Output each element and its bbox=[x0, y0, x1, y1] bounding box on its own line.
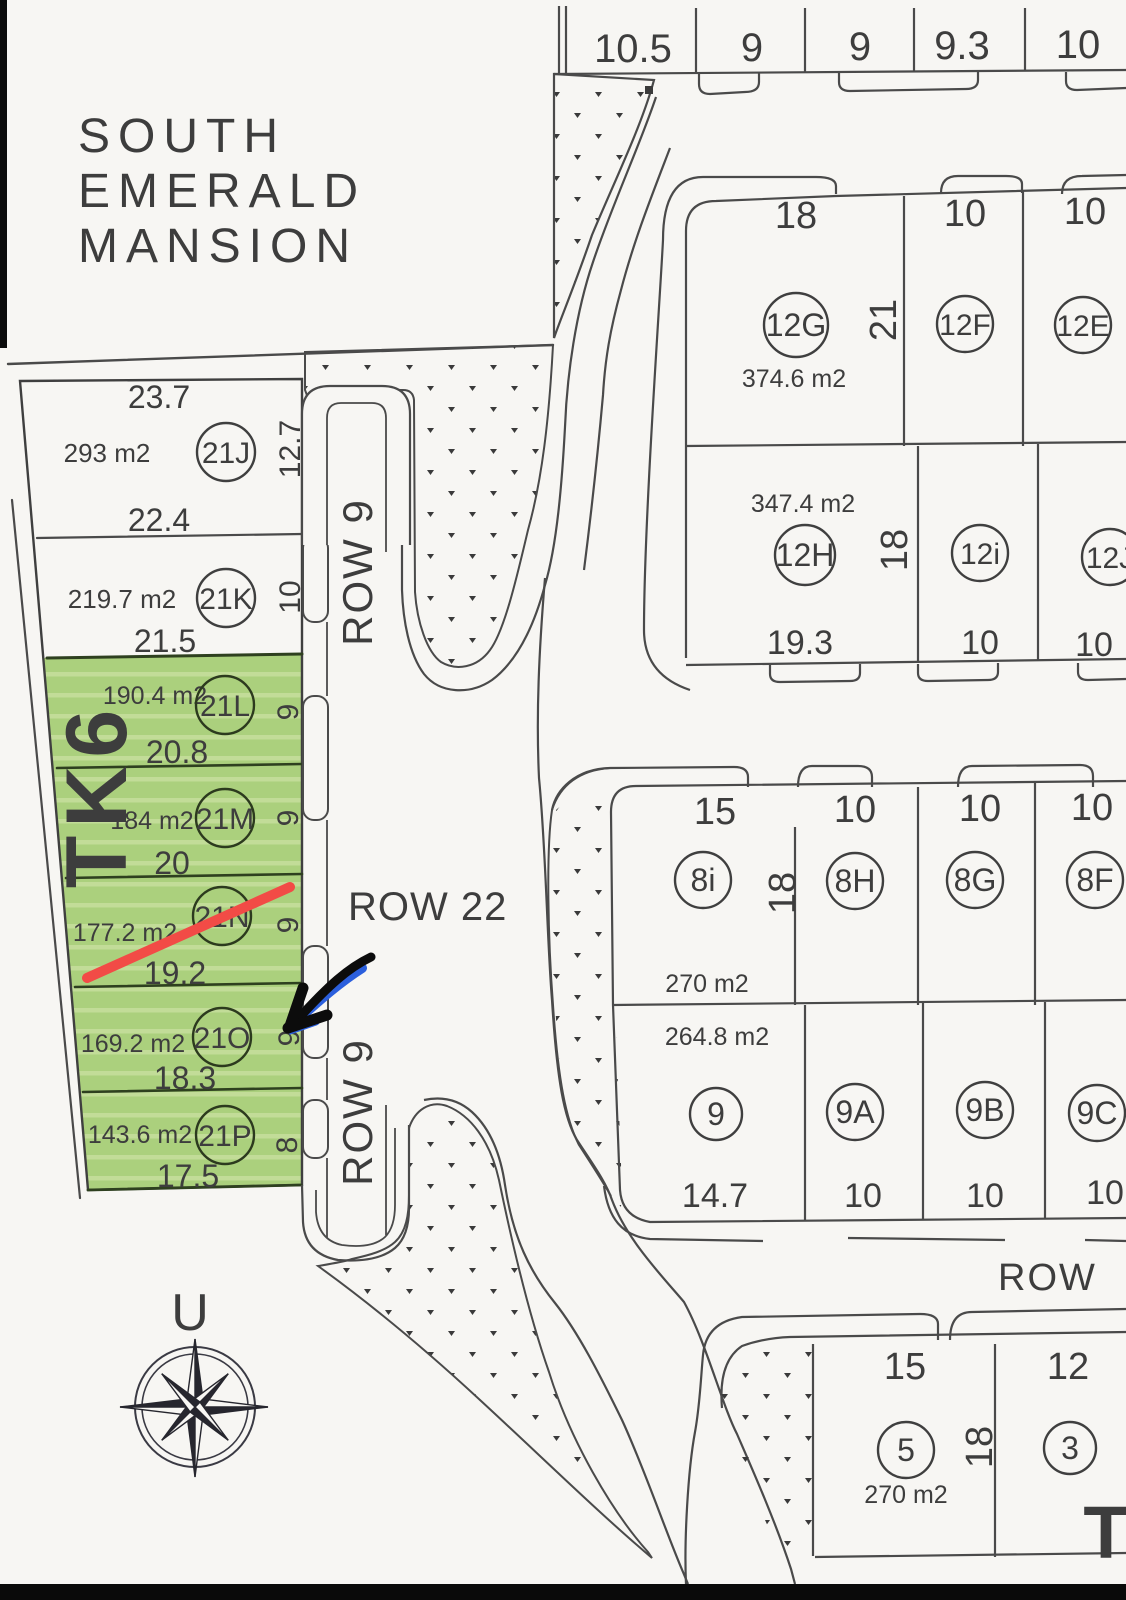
svg-text:169.2 m2: 169.2 m2 bbox=[81, 1030, 185, 1058]
svg-text:15: 15 bbox=[884, 1346, 926, 1388]
svg-text:219.7 m2: 219.7 m2 bbox=[68, 584, 176, 614]
svg-text:10: 10 bbox=[944, 193, 986, 235]
svg-text:17.5: 17.5 bbox=[157, 1158, 219, 1194]
svg-text:21J: 21J bbox=[202, 437, 250, 470]
svg-text:3: 3 bbox=[1061, 1430, 1079, 1466]
svg-text:10: 10 bbox=[959, 788, 1001, 830]
svg-text:10: 10 bbox=[1064, 191, 1106, 233]
svg-text:9B: 9B bbox=[965, 1092, 1004, 1128]
svg-text:12F: 12F bbox=[939, 309, 991, 342]
svg-text:21.5: 21.5 bbox=[134, 623, 196, 659]
svg-text:14.7: 14.7 bbox=[682, 1177, 748, 1215]
svg-text:8G: 8G bbox=[954, 862, 997, 898]
svg-text:10: 10 bbox=[844, 1177, 882, 1215]
svg-text:9A: 9A bbox=[835, 1094, 875, 1130]
svg-text:20: 20 bbox=[154, 845, 190, 881]
svg-text:T: T bbox=[1083, 1491, 1126, 1574]
svg-text:9: 9 bbox=[707, 1096, 725, 1132]
svg-text:18: 18 bbox=[874, 529, 916, 571]
svg-text:9: 9 bbox=[272, 917, 305, 934]
svg-text:21K: 21K bbox=[199, 583, 252, 616]
svg-text:5: 5 bbox=[897, 1432, 915, 1468]
svg-text:10: 10 bbox=[1071, 787, 1113, 829]
svg-text:143.6 m2: 143.6 m2 bbox=[88, 1121, 192, 1149]
svg-text:12E: 12E bbox=[1056, 310, 1109, 343]
svg-text:TK6: TK6 bbox=[49, 702, 145, 888]
svg-text:270 m2: 270 m2 bbox=[864, 1481, 947, 1509]
svg-text:270 m2: 270 m2 bbox=[665, 970, 748, 998]
svg-text:ROW 9: ROW 9 bbox=[334, 498, 381, 646]
svg-text:10: 10 bbox=[966, 1177, 1004, 1215]
svg-text:12: 12 bbox=[1047, 1346, 1089, 1388]
svg-text:8: 8 bbox=[271, 1137, 304, 1154]
svg-text:293 m2: 293 m2 bbox=[64, 438, 151, 468]
svg-text:264.8 m2: 264.8 m2 bbox=[665, 1023, 769, 1051]
svg-text:12J: 12J bbox=[1086, 542, 1126, 575]
svg-text:ROW 22: ROW 22 bbox=[348, 885, 507, 929]
svg-text:10: 10 bbox=[1086, 1174, 1124, 1212]
svg-text:10: 10 bbox=[274, 580, 307, 613]
svg-text:9.3: 9.3 bbox=[934, 24, 990, 68]
svg-text:12G: 12G bbox=[766, 307, 826, 343]
svg-text:SOUTH: SOUTH bbox=[78, 110, 286, 163]
svg-text:12H: 12H bbox=[776, 537, 835, 573]
svg-text:21M: 21M bbox=[196, 803, 254, 836]
svg-text:10: 10 bbox=[961, 624, 999, 662]
svg-text:8i: 8i bbox=[691, 862, 716, 898]
svg-text:18: 18 bbox=[762, 872, 804, 914]
svg-text:21O: 21O bbox=[194, 1022, 251, 1055]
svg-text:8F: 8F bbox=[1076, 862, 1113, 898]
svg-text:U: U bbox=[171, 1284, 209, 1342]
svg-text:9C: 9C bbox=[1077, 1095, 1118, 1131]
svg-text:22.4: 22.4 bbox=[128, 502, 190, 538]
svg-text:ROW: ROW bbox=[998, 1257, 1097, 1299]
svg-text:21L: 21L bbox=[200, 690, 250, 723]
svg-text:21: 21 bbox=[863, 299, 905, 341]
svg-text:19.3: 19.3 bbox=[767, 624, 833, 662]
svg-text:18.3: 18.3 bbox=[154, 1060, 216, 1096]
svg-text:10.5: 10.5 bbox=[594, 27, 672, 71]
svg-text:15: 15 bbox=[694, 791, 736, 833]
svg-text:9: 9 bbox=[741, 26, 763, 70]
svg-text:12i: 12i bbox=[960, 538, 1000, 571]
svg-text:9: 9 bbox=[849, 25, 871, 69]
svg-text:MANSION: MANSION bbox=[78, 220, 358, 273]
svg-text:374.6 m2: 374.6 m2 bbox=[742, 365, 846, 393]
svg-text:347.4 m2: 347.4 m2 bbox=[751, 490, 855, 518]
svg-text:10: 10 bbox=[1056, 23, 1101, 67]
svg-text:9: 9 bbox=[272, 810, 305, 827]
svg-text:EMERALD: EMERALD bbox=[78, 165, 366, 218]
svg-text:8H: 8H bbox=[835, 863, 876, 899]
svg-text:21P: 21P bbox=[198, 1120, 251, 1153]
svg-text:9: 9 bbox=[272, 704, 305, 721]
svg-text:18: 18 bbox=[959, 1426, 1001, 1468]
svg-text:20.8: 20.8 bbox=[146, 734, 208, 770]
svg-text:19.2: 19.2 bbox=[144, 955, 206, 991]
svg-text:ROW 9: ROW 9 bbox=[334, 1038, 381, 1186]
svg-text:18: 18 bbox=[775, 195, 817, 237]
svg-text:10: 10 bbox=[1075, 626, 1113, 664]
svg-text:23.7: 23.7 bbox=[128, 379, 190, 415]
svg-text:10: 10 bbox=[834, 789, 876, 831]
